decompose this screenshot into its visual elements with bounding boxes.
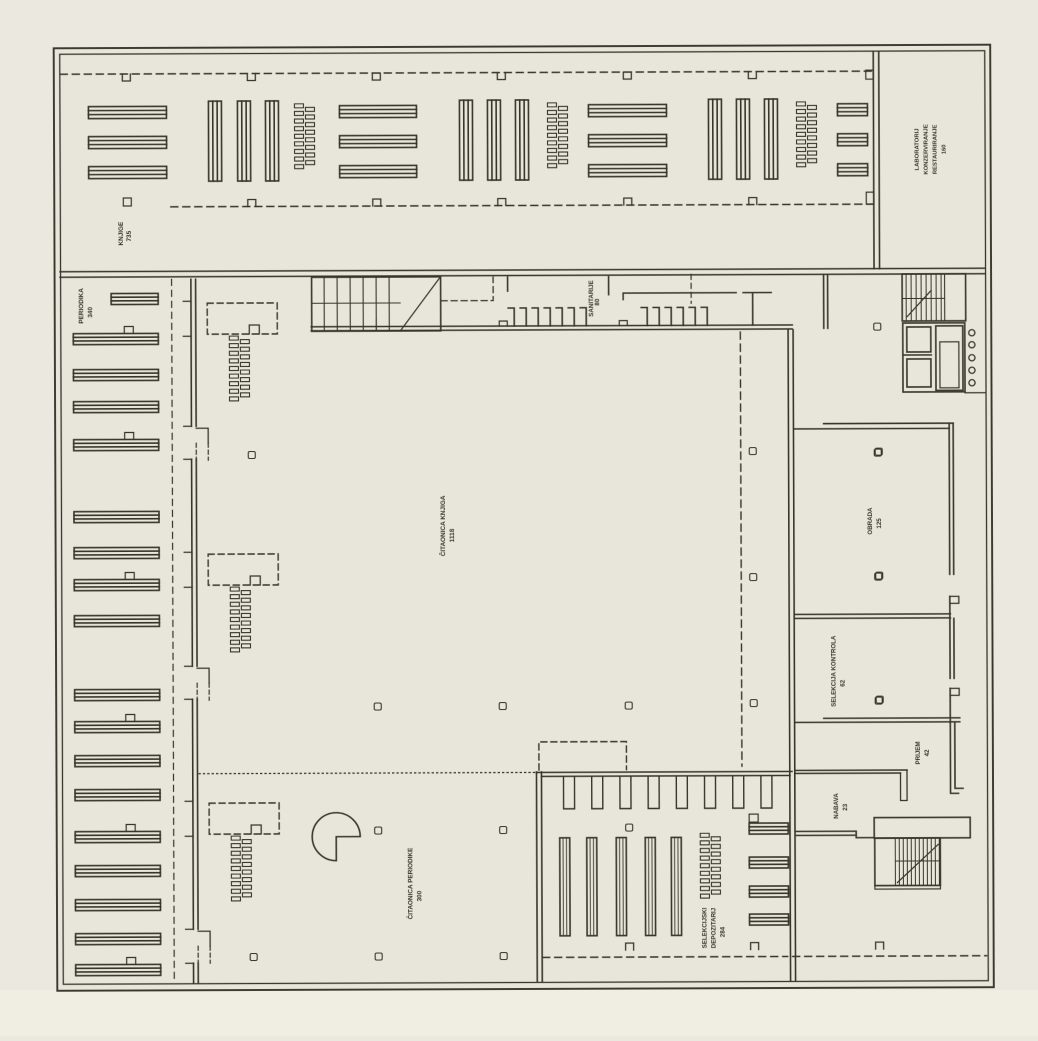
svg-text:KNJIGE: KNJIGE bbox=[118, 221, 125, 246]
svg-text:SANITARIJE: SANITARIJE bbox=[588, 280, 595, 316]
svg-text:PERIODIKA: PERIODIKA bbox=[78, 288, 85, 324]
svg-text:62: 62 bbox=[840, 679, 847, 686]
svg-text:ČITAONICA PERIODIKE: ČITAONICA PERIODIKE bbox=[405, 847, 414, 919]
svg-text:SELEKCIJA KONTROLA: SELEKCIJA KONTROLA bbox=[830, 635, 837, 707]
svg-text:PRIJEM: PRIJEM bbox=[915, 741, 922, 764]
svg-text:160: 160 bbox=[942, 144, 948, 155]
svg-text:80: 80 bbox=[594, 298, 601, 305]
svg-text:23: 23 bbox=[842, 803, 849, 810]
svg-text:KONZERVIRANJE: KONZERVIRANJE bbox=[923, 124, 929, 174]
svg-text:DEPOZITARIJ: DEPOZITARIJ bbox=[710, 907, 717, 948]
svg-text:LABORATORIJ: LABORATORIJ bbox=[915, 128, 921, 170]
svg-text:SELEKCIJSKI: SELEKCIJSKI bbox=[701, 907, 708, 948]
svg-text:RESTAURIRANJE: RESTAURIRANJE bbox=[932, 124, 938, 174]
svg-text:300: 300 bbox=[416, 890, 423, 901]
svg-text:OBRADA: OBRADA bbox=[867, 507, 874, 535]
svg-text:ČITAONICA KNJIGA: ČITAONICA KNJIGA bbox=[438, 495, 447, 556]
svg-text:284: 284 bbox=[720, 926, 727, 937]
svg-text:735: 735 bbox=[126, 230, 133, 241]
svg-text:340: 340 bbox=[87, 307, 94, 318]
svg-text:42: 42 bbox=[924, 749, 931, 756]
svg-text:1118: 1118 bbox=[449, 528, 456, 542]
svg-text:125: 125 bbox=[876, 518, 883, 529]
svg-text:NABAVA: NABAVA bbox=[833, 793, 840, 819]
